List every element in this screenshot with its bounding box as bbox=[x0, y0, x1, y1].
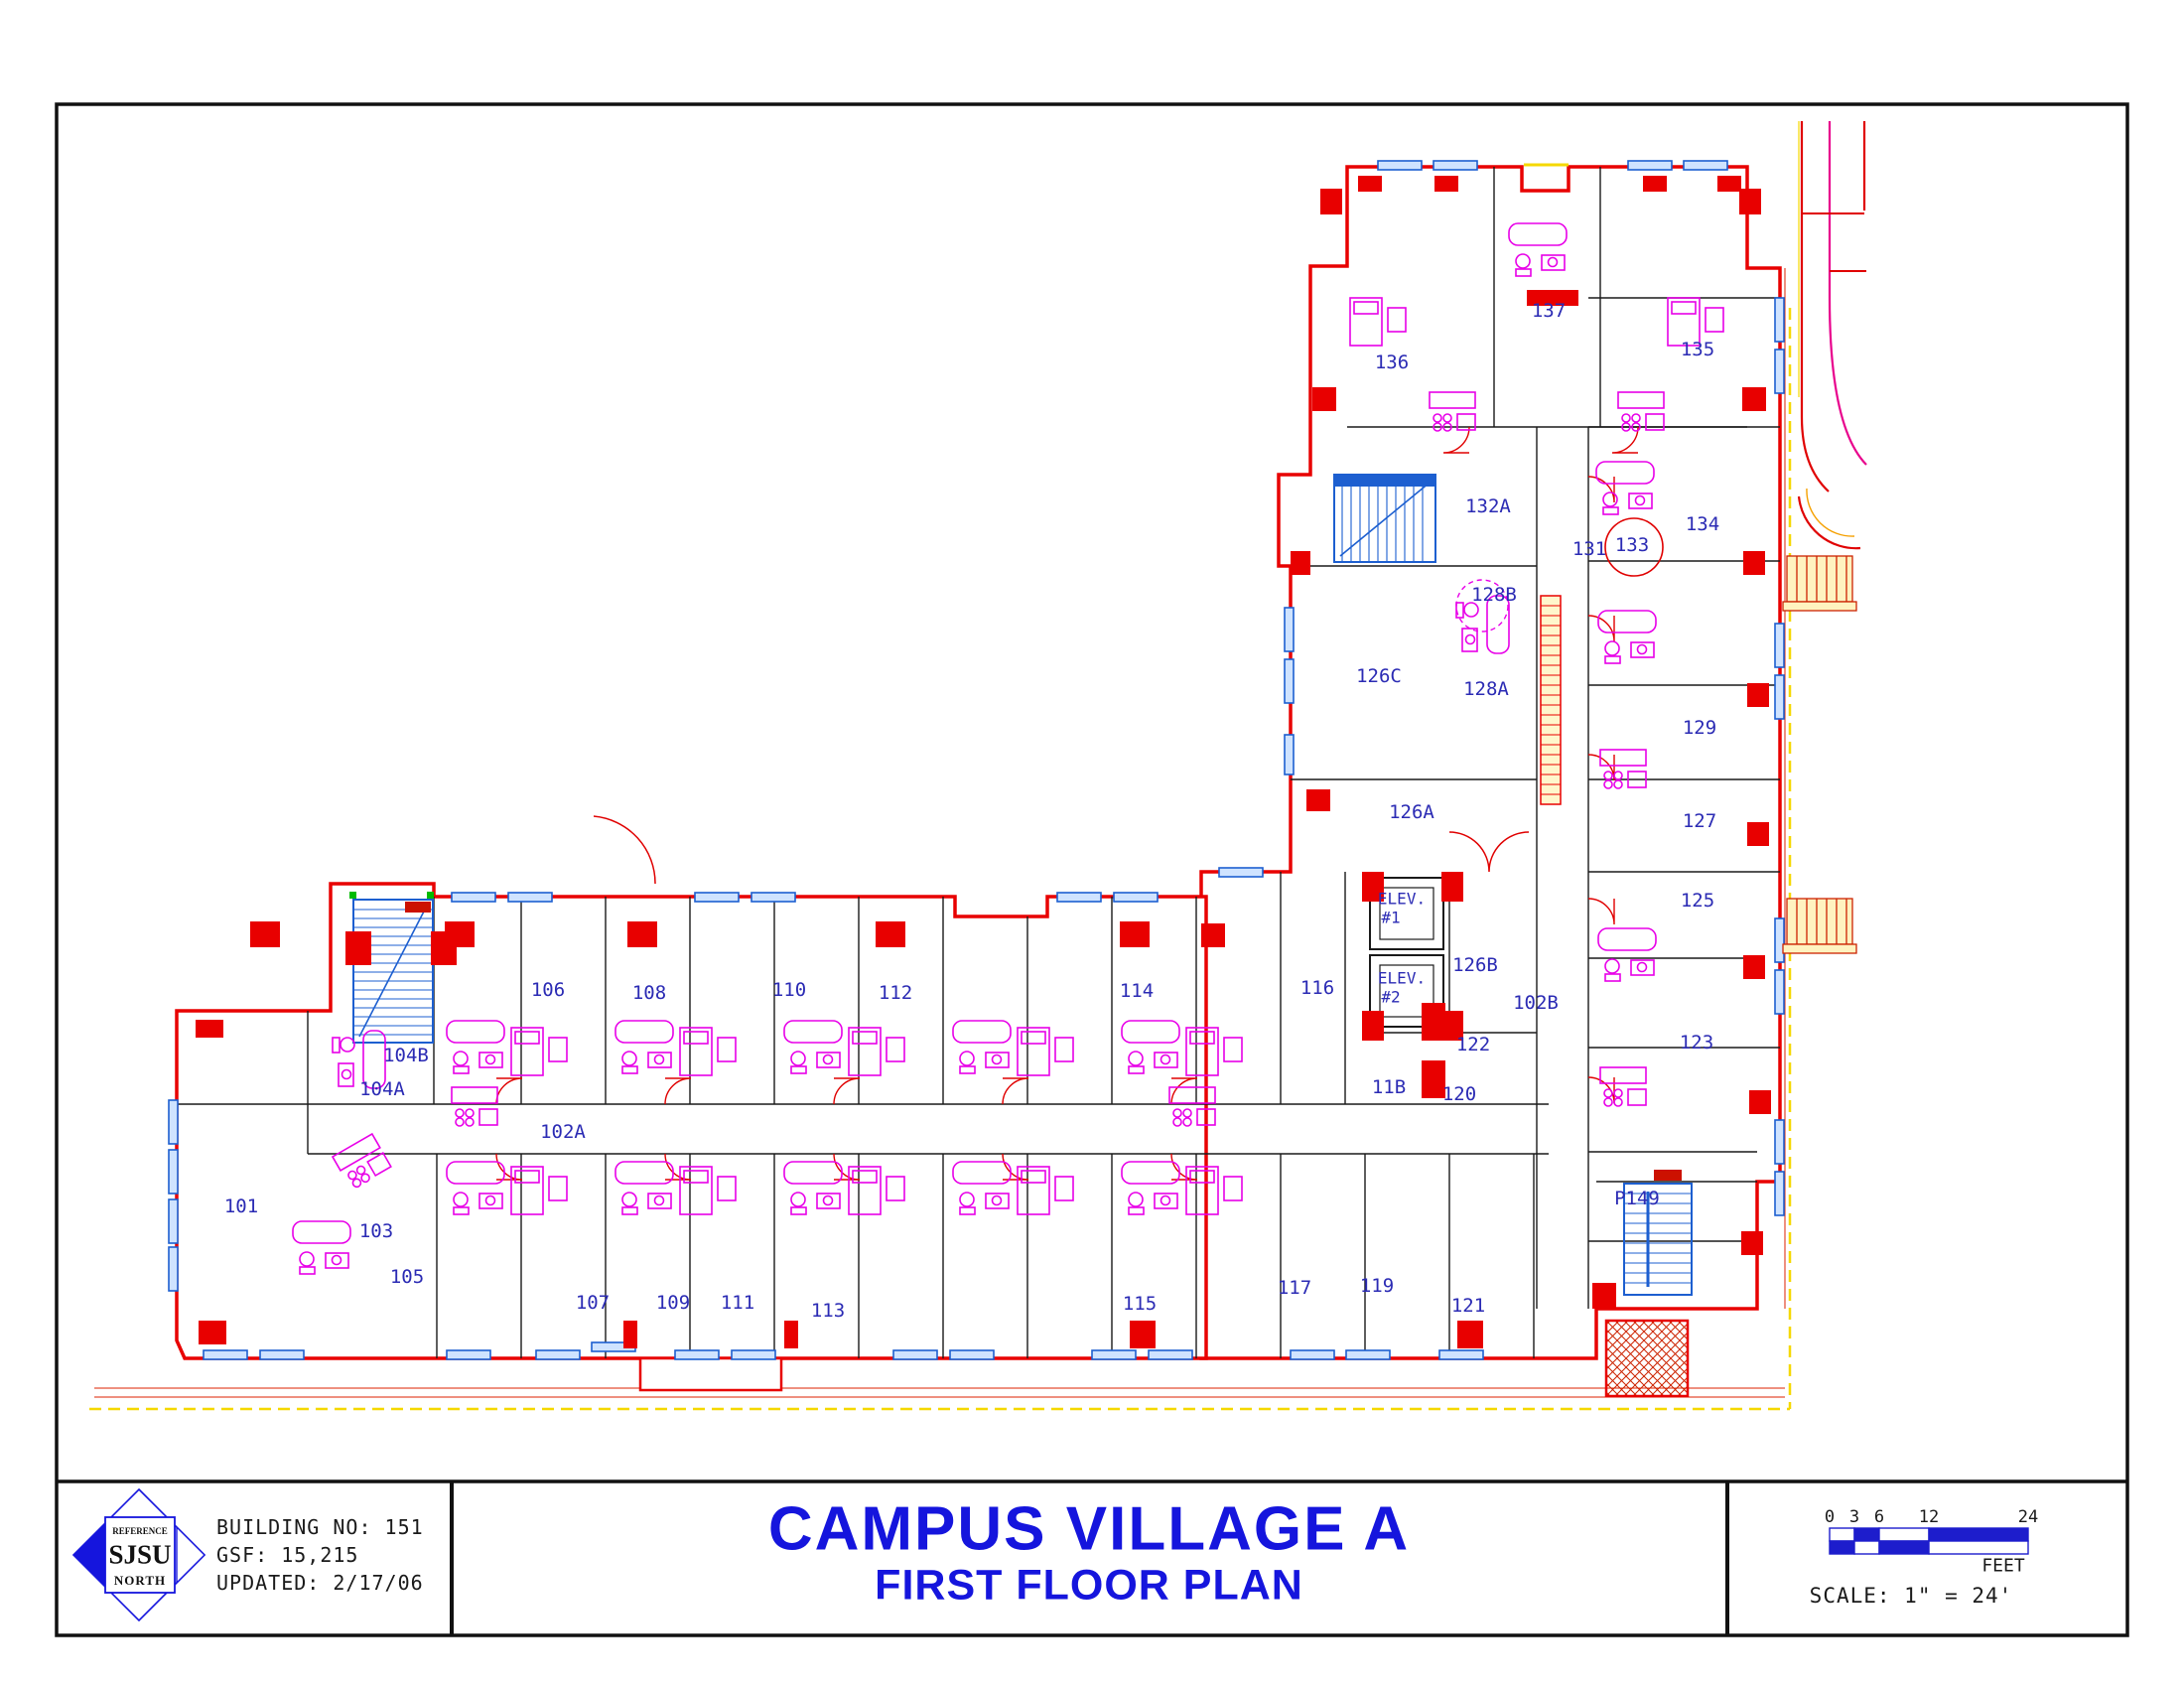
scale-ratio-text: SCALE: 1" = 24' bbox=[1810, 1584, 2013, 1608]
scale-feet-label: FEET bbox=[1981, 1556, 2024, 1577]
tb-gsf: GSF: 15,215 bbox=[216, 1543, 358, 1567]
logo-reference-text: REFERENCE bbox=[112, 1526, 168, 1536]
logo-north-text: NORTH bbox=[114, 1573, 166, 1589]
sheet-subtitle: FIRST FLOOR PLAN bbox=[875, 1562, 1303, 1611]
logo-sjsu-text: SJSU bbox=[108, 1540, 171, 1571]
building-outline bbox=[177, 167, 1780, 1396]
floor-plan-drawing bbox=[0, 0, 2184, 1688]
scale-bar bbox=[1830, 1528, 2028, 1554]
exterior-stair-top bbox=[1783, 556, 1856, 611]
exterior-stair-mid bbox=[1783, 899, 1856, 953]
tb-building-no: BUILDING NO: 151 bbox=[216, 1515, 424, 1539]
tb-updated: UPDATED: 2/17/06 bbox=[216, 1571, 424, 1595]
sheet-border bbox=[57, 104, 2127, 1635]
utility-chase bbox=[1541, 596, 1561, 804]
drawing-sheet: 106108110112114116104B104A102A1011031051… bbox=[0, 0, 2184, 1688]
sheet-title: CAMPUS VILLAGE A bbox=[768, 1494, 1410, 1565]
